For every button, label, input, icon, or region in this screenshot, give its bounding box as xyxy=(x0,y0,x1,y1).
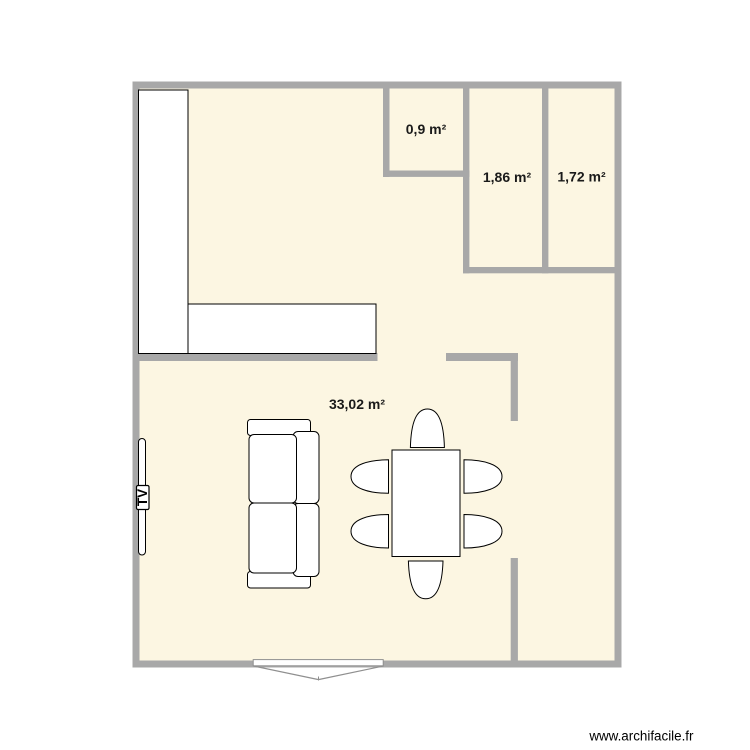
svg-text:33,02 m²: 33,02 m² xyxy=(329,396,385,412)
svg-text:TV: TV xyxy=(135,489,150,506)
svg-text:1,72 m²: 1,72 m² xyxy=(557,169,606,185)
svg-text:0,9 m²: 0,9 m² xyxy=(406,121,447,137)
svg-text:www.archifacile.fr: www.archifacile.fr xyxy=(588,729,694,744)
svg-text:1,86 m²: 1,86 m² xyxy=(483,169,532,185)
